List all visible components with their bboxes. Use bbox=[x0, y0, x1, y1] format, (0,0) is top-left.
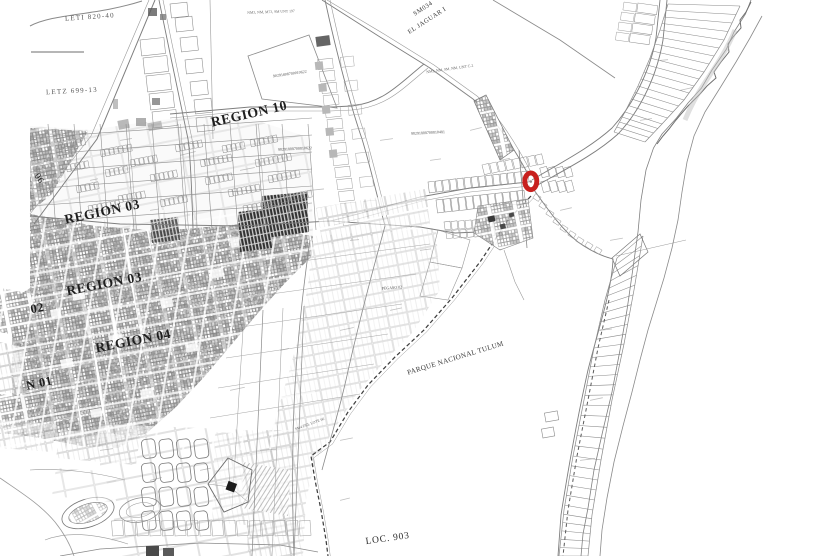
svg-text:02: 02 bbox=[29, 300, 45, 316]
